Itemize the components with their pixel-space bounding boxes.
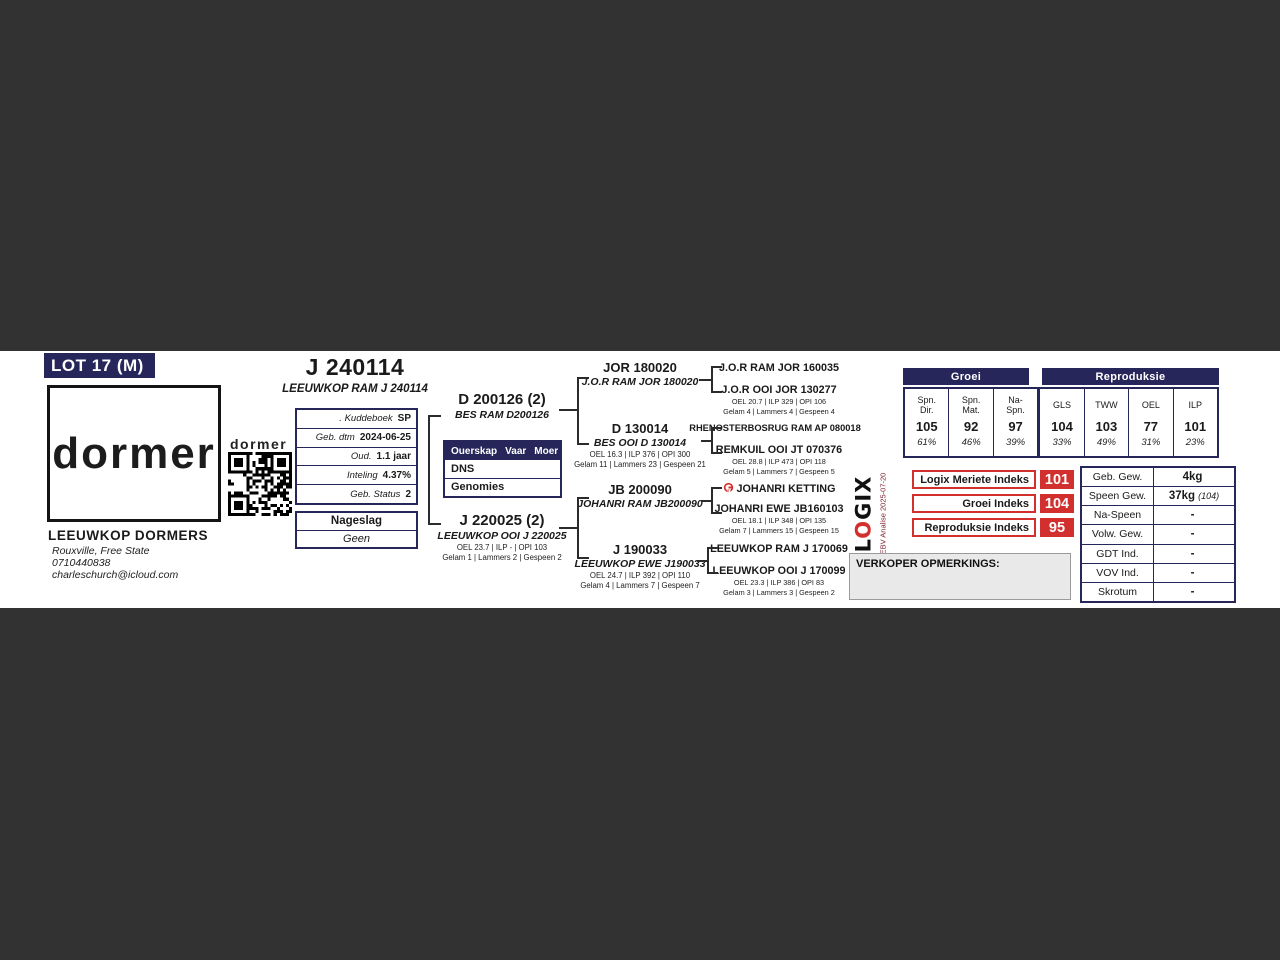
index-label: Spn. Mat.: [957, 393, 985, 417]
table-row: Geb. dtm2024-06-25: [297, 429, 416, 448]
verification-method: DNS: [451, 463, 474, 475]
ancestor-id: JB 200090: [608, 482, 672, 497]
ancestor-id: JOR 180020: [603, 360, 677, 375]
ancestor-name: TJOHANRI KETTING: [723, 482, 836, 495]
seller-remarks-label: VERKOPER OPMERKINGS:: [856, 558, 1000, 570]
dormer-small-logo: dormer: [230, 436, 287, 452]
table-row: Genomies: [445, 479, 560, 497]
pedigree-grandsire-maternal: JB 200090 JOHANRI RAM JB200090: [572, 482, 708, 510]
ancestor-id: D 130014: [612, 421, 668, 436]
ancestor-stats: Gelam 4 | Lammers 7 | Gespeen 7: [580, 581, 699, 590]
logix-o-icon: O: [851, 520, 875, 539]
index-accuracy: 31%: [1141, 437, 1160, 448]
pedigree-ggp-5: TJOHANRI KETTING: [708, 482, 850, 495]
table-row: Geb. Gew.4kg: [1082, 468, 1234, 487]
reproduksie-indeks-value: 95: [1040, 518, 1074, 537]
johanri-stud-icon: T: [723, 482, 734, 493]
table-row: DNS: [445, 460, 560, 479]
ancestor-name-text: JOHANRI KETTING: [737, 483, 836, 495]
logix-meriete-indeks-value: 101: [1040, 470, 1074, 489]
seller-name: LEEUWKOP DORMERS: [48, 528, 208, 543]
weight-label: Speen Gew.: [1082, 487, 1154, 505]
weight-label: Skrotum: [1082, 583, 1154, 601]
detail-value: SP: [398, 413, 411, 424]
pedigree-line: [577, 377, 589, 445]
pedigree-grandsire-paternal: JOR 180020 J.O.R RAM JOR 180020: [572, 360, 708, 388]
pedigree-line: [711, 487, 722, 514]
detail-label: . Kuddeboek: [302, 413, 398, 424]
weight-label: GDT Ind.: [1082, 545, 1154, 563]
dam-stats: Gelam 1 | Lammers 2 | Gespeen 2: [442, 553, 561, 562]
logix-gix: GIX: [851, 476, 875, 520]
pedigree-ggp-2: J.O.R OOI JOR 130277 OEL 20.7 | ILP 329 …: [708, 384, 850, 416]
ancestor-name: LEEUWKOP RAM J 170069: [710, 543, 848, 555]
verification-method: Genomies: [451, 481, 504, 493]
index-value: 105: [916, 419, 938, 434]
index-accuracy: 61%: [917, 437, 936, 448]
index-cell: GLS10433%: [1038, 389, 1084, 456]
weight-value: 4kg: [1183, 471, 1203, 483]
pedigree-sire: D 200126 (2) BES RAM D200126: [432, 391, 572, 421]
parent-verification-header: Ouerskap Vaar Moer: [445, 442, 560, 460]
sire-id: D 200126 (2): [458, 391, 546, 408]
breeder-logo-box: dormer: [47, 385, 221, 522]
pedigree-line: [559, 409, 577, 411]
ancestor-stats: OEL 24.7 | ILP 392 | OPI 110: [590, 571, 690, 580]
pedigree-line: [701, 500, 711, 502]
pedigree-line: [707, 547, 718, 574]
index-cell: ILP10123%: [1174, 389, 1217, 456]
logix-l: L: [851, 539, 875, 553]
ancestor-stats: OEL 28.8 | ILP 473 | OPI 118: [732, 457, 826, 466]
table-row: GDT Ind.-: [1082, 545, 1234, 564]
weight-value: 37kg: [1169, 490, 1195, 502]
ancestor-stats: OEL 18.1 | ILP 348 | OPI 135: [732, 516, 826, 525]
pedigree-ggp-3: RHENOSTERBOSRUG RAM AP 080018: [700, 423, 850, 433]
pedigree-line: [559, 527, 577, 529]
pedigree-line: [711, 366, 722, 393]
weight-value: -: [1191, 528, 1195, 540]
pedigree-line: [697, 560, 707, 562]
pedigree-granddam-maternal: J 190033 LEEUWKOP EWE J190033 OEL 24.7 |…: [572, 542, 708, 590]
ancestor-stats: OEL 20.7 | ILP 329 | OPI 106: [732, 397, 826, 406]
header-moer: Moer: [534, 446, 558, 457]
index-cell: OEL7731%: [1129, 389, 1173, 456]
ancestor-stats: Gelam 5 | Lammers 7 | Gespeen 5: [723, 467, 835, 476]
ancestor-stats: Gelam 11 | Lammers 23 | Gespeen 21: [574, 460, 706, 469]
dam-id: J 220025 (2): [459, 512, 544, 529]
weights-table: Geb. Gew.4kg Speen Gew.37kg(104) Na-Spee…: [1080, 466, 1236, 603]
pedigree-line: [711, 427, 722, 454]
detail-label: Oud.: [302, 451, 377, 462]
bottom-dark-band: [0, 608, 1280, 960]
groei-header: Groei: [903, 368, 1029, 385]
index-value: 101: [1184, 419, 1206, 434]
ancestor-stats: Gelam 4 | Lammers 4 | Gespeen 4: [723, 407, 835, 416]
pedigree-dam: J 220025 (2) LEEUWKOP OOI J 220025 OEL 2…: [432, 512, 572, 562]
ancestor-name: J.O.R OOI JOR 130277: [721, 384, 836, 396]
pedigree-ggp-7: LEEUWKOP RAM J 170069: [708, 543, 850, 555]
weight-label: VOV Ind.: [1082, 564, 1154, 582]
index-cell: Spn. Mat.9246%: [949, 389, 993, 456]
index-label: Na- Spn.: [1002, 393, 1030, 417]
animal-id-title: J 240114: [255, 354, 455, 381]
table-row: Speen Gew.37kg(104): [1082, 487, 1234, 506]
parent-verification-table: Ouerskap Vaar Moer DNS Genomies: [443, 440, 562, 498]
pedigree-ggp-1: J.O.R RAM JOR 160035: [708, 362, 850, 374]
index-cell: Spn. Dir.10561%: [905, 389, 949, 456]
weight-label: Na-Speen: [1082, 506, 1154, 524]
header-vaar: Vaar: [505, 446, 526, 457]
ancestor-reg: JOHANRI RAM JB200090: [577, 498, 702, 510]
detail-value: 2024-06-25: [360, 432, 411, 443]
ancestor-name: REMKUIL OOI JT 070376: [716, 444, 842, 456]
ancestor-stats: OEL 23.3 | ILP 386 | OPI 83: [734, 578, 824, 587]
dam-reg: LEEUWKOP OOI J 220025: [437, 530, 566, 542]
detail-label: Geb. Status: [302, 489, 405, 500]
index-label: OEL: [1142, 393, 1160, 417]
index-label: Spn. Dir.: [913, 393, 941, 417]
nageslag-box: Nageslag Geen: [295, 511, 418, 549]
dam-stats: OEL 23.7 | ILP - | OPI 103: [457, 543, 547, 552]
pedigree-line: [701, 440, 711, 442]
table-row: VOV Ind.-: [1082, 564, 1234, 583]
index-label: TWW: [1095, 393, 1118, 417]
index-cell: Na- Spn.9739%: [994, 389, 1038, 456]
index-value: 104: [1051, 419, 1073, 434]
index-value: 97: [1008, 419, 1022, 434]
animal-details-table: . KuddeboekSP Geb. dtm2024-06-25 Oud.1.1…: [295, 408, 418, 505]
reproduksie-indeks-label: Reproduksie Indeks: [912, 518, 1036, 537]
index-label: GLS: [1053, 393, 1071, 417]
seller-phone: 0710440838: [52, 557, 110, 569]
pedigree-line: [577, 497, 589, 559]
nageslag-title: Nageslag: [297, 513, 416, 531]
table-row: Volw. Gew.-: [1082, 525, 1234, 544]
weight-note: (104): [1198, 491, 1219, 501]
ancestor-reg: J.O.R RAM JOR 180020: [582, 376, 699, 388]
index-accuracy: 49%: [1097, 437, 1116, 448]
detail-label: Inteling: [302, 470, 383, 481]
dormer-logo: dormer: [52, 429, 216, 479]
detail-value: 1.1 jaar: [377, 451, 411, 462]
sire-reg: BES RAM D200126: [455, 409, 549, 421]
table-row: . KuddeboekSP: [297, 410, 416, 429]
weight-value: -: [1191, 586, 1195, 598]
detail-value: 2: [405, 489, 411, 500]
ancestor-name: J.O.R RAM JOR 160035: [719, 362, 839, 374]
table-row: Inteling4.37%: [297, 466, 416, 485]
header-ouerskap: Ouerskap: [451, 446, 497, 457]
index-label: ILP: [1188, 393, 1202, 417]
index-accuracy: 46%: [962, 437, 981, 448]
pedigree-ggp-4: REMKUIL OOI JT 070376 OEL 28.8 | ILP 473…: [708, 444, 850, 476]
logix-logo: LOGIX: [846, 468, 880, 560]
seller-email: charleschurch@icloud.com: [52, 569, 178, 581]
lot-number-badge: LOT 17 (M): [44, 353, 155, 378]
ebv-indices-table: Spn. Dir.10561% Spn. Mat.9246% Na- Spn.9…: [903, 387, 1219, 458]
ancestor-id: J 190033: [613, 542, 667, 557]
ancestor-name: LEEUWKOP OOI J 170099: [712, 565, 845, 577]
detail-label: Geb. dtm: [302, 432, 360, 443]
index-accuracy: 23%: [1186, 437, 1205, 448]
index-value: 103: [1096, 419, 1118, 434]
weight-value: -: [1191, 567, 1195, 579]
ancestor-reg: BES OOI D 130014: [594, 437, 686, 449]
seller-remarks-box[interactable]: VERKOPER OPMERKINGS:: [849, 553, 1071, 600]
ancestor-name: JOHANRI EWE JB160103: [714, 503, 843, 515]
ancestor-stats: Gelam 3 | Lammers 3 | Gespeen 2: [723, 588, 835, 597]
table-row: Oud.1.1 jaar: [297, 448, 416, 467]
reproduksie-header: Reproduksie: [1042, 368, 1219, 385]
pedigree-ggp-6: JOHANRI EWE JB160103 OEL 18.1 | ILP 348 …: [708, 503, 850, 535]
weight-value: -: [1191, 548, 1195, 560]
pedigree-ggp-8: LEEUWKOP OOI J 170099 OEL 23.3 | ILP 386…: [708, 565, 850, 597]
ancestor-reg: LEEUWKOP EWE J190033: [575, 558, 706, 570]
weight-label: Geb. Gew.: [1082, 468, 1154, 486]
table-row: Na-Speen-: [1082, 506, 1234, 525]
weight-value: -: [1191, 509, 1195, 521]
ebv-analysis-date: EBV Analise 2025-07-20: [876, 463, 890, 563]
index-accuracy: 39%: [1006, 437, 1025, 448]
qr-code[interactable]: [228, 452, 292, 516]
weight-label: Volw. Gew.: [1082, 525, 1154, 543]
index-value: 77: [1144, 419, 1158, 434]
pedigree-line: [699, 379, 711, 381]
pedigree-granddam-paternal: D 130014 BES OOI D 130014 OEL 16.3 | ILP…: [572, 421, 708, 469]
ancestor-stats: OEL 16.3 | ILP 376 | OPI 300: [590, 450, 691, 459]
index-accuracy: 33%: [1052, 437, 1071, 448]
table-row: Skrotum-: [1082, 583, 1234, 601]
groei-indeks-value: 104: [1040, 494, 1074, 513]
table-row: Geb. Status2: [297, 485, 416, 503]
groei-indeks-label: Groei Indeks: [912, 494, 1036, 513]
index-value: 92: [964, 419, 978, 434]
ancestor-stats: Gelam 7 | Lammers 15 | Gespeen 15: [719, 526, 839, 535]
pedigree-line: [428, 415, 441, 525]
detail-value: 4.37%: [383, 470, 411, 481]
seller-location: Rouxville, Free State: [52, 545, 149, 557]
top-dark-band: [0, 0, 1280, 351]
catalog-page: LOT 17 (M) dormer LEEUWKOP DORMERS Rouxv…: [0, 351, 1280, 608]
logix-meriete-indeks-label: Logix Meriete Indeks: [912, 470, 1036, 489]
index-cell: TWW10349%: [1085, 389, 1129, 456]
nageslag-value: Geen: [297, 531, 416, 548]
